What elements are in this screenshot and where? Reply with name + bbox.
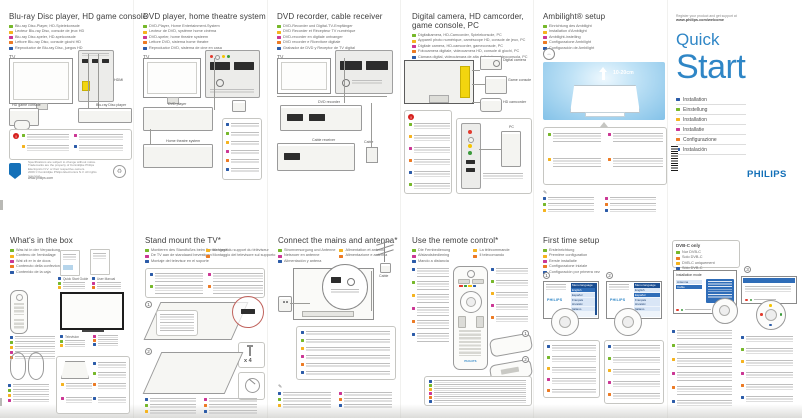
language-flag-icon [278,392,281,395]
translation-item: Montaggio del televisore sul supporto [206,253,261,258]
option-cable: Cable [676,285,702,289]
language-flag-icon [676,257,680,260]
language-flag-icon [676,98,680,101]
footnote-placeholder [548,197,594,200]
option-list: Antenna Cable [676,280,702,289]
language-flag-icon [226,150,229,153]
language-flag-icon [301,339,304,342]
language-flag-icon [409,159,412,162]
panel-setup: First time setup ErsteinrichtungPremière… [543,236,664,275]
television-caption: Television [60,335,124,347]
instruction-placeholder [746,384,793,392]
translation-item: Configuración por primera vez [543,270,664,275]
language-flag-icon [676,118,680,121]
language-flag-icon [412,50,416,53]
note-text-placeholder [434,400,526,403]
language-flag-icon [543,36,547,39]
menu-item: English [571,288,597,292]
callout-placeholder [496,280,528,288]
quick-start-guide-booklet [60,250,80,276]
language-flag-icon [226,159,229,162]
translation-item: Montaje del televisor en el soporte [145,259,200,264]
screen-philips-label: PHILIPS [547,298,562,302]
language-flag-icon [60,335,63,338]
stand-footnotes [145,398,263,414]
caption-placeholder [98,335,118,338]
setup2-instructions-right [741,336,797,402]
step-circle-2: 2 [522,356,529,363]
language-flag-icon [278,249,282,252]
instruction-placeholder [677,386,732,396]
translation-item: Installatie [676,125,746,135]
ok-button [466,297,476,307]
note-text-placeholder [231,159,259,164]
language-flag-icon [206,255,210,258]
caution-icon: ! [13,133,19,139]
language-flag-icon [150,285,153,288]
instruction-placeholder [746,360,793,368]
panel-camera: Digital camera, HD camcorder, game conso… [412,12,530,60]
fold-line [267,0,268,418]
language-flag-icon [672,372,675,375]
language-flag-icon [74,145,77,148]
language-flag-icon [301,363,304,366]
language-flag-icon [543,197,546,200]
magnifier-detail-circle [232,296,264,328]
side-connector-strip [461,123,481,189]
panel-title: What's in the box [10,236,128,245]
language-flag-icon [429,396,432,399]
remote-brand-label: PHILIPS [454,359,487,363]
language-flag-icon [676,251,680,254]
note-text-placeholder [231,141,259,146]
remote-ok-detail [559,316,571,328]
translation-list: Einrichtung des AmbilightInstallation d'… [543,24,665,51]
tv-stand [585,112,625,117]
language-flag-icon [145,249,149,252]
instruction-placeholder [613,369,660,377]
language-flag-icon [473,255,477,258]
screw-head-icon [247,345,253,347]
language-flag-icon [608,158,611,161]
language-flag-icon [60,344,63,347]
language-flag-icon [741,396,744,399]
menu-title: Menu language [571,283,597,288]
panel-stand: Stand mount the TV* Montieren des Standf… [145,236,263,264]
home-theatre-device [143,144,213,168]
language-flag-icon [548,133,551,136]
philips-site: www.philips.com [28,176,53,180]
game-console-label: HD game console [12,103,41,107]
language-flag-icon [543,41,547,44]
stand-info-box [56,356,130,414]
language-flag-icon [301,331,304,334]
language-flag-icon [93,372,96,375]
qsg-caption: Quick Start Guide [58,277,88,289]
instruction-placeholder [746,336,793,344]
pc-label: PC [509,125,514,129]
note-text-placeholder [553,158,601,169]
fold-line [133,0,134,418]
language-flag-icon [10,260,14,263]
bluray-player-device [78,108,132,123]
language-flag-icon [412,56,416,59]
step-circle-1: 1 [543,272,550,279]
language-flag-icon [412,268,415,271]
dvd-player-label: DVD player [168,102,186,106]
language-flag-icon [339,249,343,252]
camera-lens-icon [493,60,500,67]
pc-tower-device [501,131,521,167]
up-arrow-icon [602,72,605,80]
instruction-placeholder [677,358,732,368]
remote-callouts-left [412,268,450,342]
language-flag-icon [8,394,11,397]
philips-wordmark: PHILIPS [747,169,787,180]
remote-ok-detail [719,305,730,316]
antenna-cable [277,96,387,97]
language-flag-icon [676,108,680,111]
note-text-placeholder [434,380,526,383]
caption-placeholder [13,389,49,392]
language-flag-icon [543,209,546,212]
footnote-placeholder [283,398,331,402]
translation-list: Digitalkamera, HD-Camcorder, Spielekonso… [412,33,530,60]
instruction-placeholder [677,344,732,354]
note-text-placeholder [613,133,663,144]
hdmi-label: HDMI [114,78,123,82]
language-flag-icon [208,285,211,288]
language-flag-icon [143,31,147,34]
language-flag-icon [93,335,96,338]
scart-port-icon [210,62,230,70]
language-flag-icon [547,345,550,348]
color-keys [459,285,476,287]
scart-cable [214,58,215,110]
translation-item: Alimentazione e antenna [339,253,394,258]
language-flag-icon [491,316,494,319]
instruction-placeholder [746,348,793,356]
translation-item: Einstellung [676,105,746,115]
caption-placeholder [63,282,85,285]
language-flag-icon [226,141,229,144]
caption-placeholder [15,341,55,344]
vga-cable [479,149,501,150]
language-flag-icon [672,330,675,333]
instruction-placeholder [677,372,732,382]
manual-label: User Manual [97,277,115,281]
language-flag-icon [60,340,63,343]
barcode [671,146,678,171]
remote-control-illustration [10,290,28,334]
caution-text-placeholder [79,145,123,153]
footnote-placeholder [610,197,656,200]
side-connector-detail: PC [456,118,532,194]
caution-box: ! [9,129,132,160]
language-flag-icon [547,389,550,392]
panel-title: DVD player, home theatre system [143,12,263,21]
note-text-placeholder [231,123,259,128]
caption-placeholder [160,314,194,332]
translation-item: Il telecomando [473,253,528,258]
footnote-placeholder [610,209,656,212]
menu-item: Français [571,298,597,302]
caption-placeholder [98,383,126,391]
step-circle-1: 1 [522,330,529,337]
language-flag-icon [58,286,61,289]
language-flag-icon [339,255,343,258]
translation-label: Contenido de la caja [16,270,51,275]
inset-caption-box [156,310,198,336]
screw-count-label: x 4 [244,358,252,364]
tv-screen [13,62,69,100]
note-text-placeholder [213,285,263,294]
language-flag-icon [412,255,416,258]
language-flag-icon [339,392,342,395]
cover-language-list: InstallationEinstellungInstallationInsta… [676,95,746,155]
caution-box: ! [404,110,452,194]
menu-item: Italiano [634,307,660,311]
detail-caption-placeholder [483,173,523,181]
screen-legend [676,309,711,312]
translation-item: Alimentación y antena [278,259,333,264]
language-flag-icon [9,36,13,39]
stand-illustration [61,361,89,379]
instruction-placeholder [746,396,793,402]
language-flag-icon [93,397,96,400]
qsg-label: Quick Start Guide [63,277,88,281]
language-flag-icon [301,347,304,350]
option-antenna: Antenna [676,280,702,284]
instruction-placeholder [677,400,732,408]
caption-placeholder [13,384,49,387]
caption-placeholder [98,362,126,368]
power-adapter [232,100,246,112]
footnote-placeholder [344,404,392,408]
translation-item: Configuración de Ambilight [543,46,665,51]
language-flag-icon [74,134,77,137]
language-flag-icon [277,47,281,50]
translation-label: Installation [683,97,707,103]
language-flag-icon [543,25,547,28]
recycle-logo-icon: ♻ [113,165,126,178]
stand-note-box [145,268,265,298]
port-caption-placeholder [210,89,254,93]
note-text-placeholder [434,392,526,395]
callout-placeholder [417,281,449,290]
language-flag-icon [278,255,282,258]
language-flag-icon [92,282,95,285]
antenna-wall-socket [380,263,391,273]
language-flag-icon [10,341,13,344]
callout-placeholder [496,268,528,276]
language-flag-icon [543,260,547,263]
language-flag-icon [409,183,412,186]
screen-text-placeholder [546,284,566,290]
language-flag-icon [145,410,148,413]
caption-placeholder [97,282,121,285]
language-flag-icon [277,36,281,39]
callout-placeholder [417,320,449,329]
translation-label: Installatie [683,127,704,133]
language-flag-icon [277,41,281,44]
tv-front-illustration [143,58,201,98]
cables-caption [8,384,52,402]
language-flag-icon [608,357,611,360]
language-flag-icon [8,389,11,392]
setup-instructions-1 [543,340,600,398]
fold-line [400,0,401,418]
translation-label: Instalación [683,147,707,153]
callout-placeholder [417,268,449,277]
instruction-placeholder [746,372,793,380]
translation-item: Installation [676,115,746,125]
language-flag-icon [22,145,25,148]
screw-icon [249,346,251,356]
booklet-cover-text [63,254,76,260]
booklet-cover-text [93,253,106,259]
number-pad [459,330,481,356]
caution-text-placeholder [27,134,69,142]
power-cord-coil [10,352,26,380]
footnote-placeholder [150,404,196,408]
note-text-placeholder [434,384,526,387]
antenna-cable [371,271,372,311]
panel-title: Use the remote control* [412,236,530,245]
language-flag-icon [547,378,550,381]
language-flag-icon [429,392,432,395]
translation-label: Einstellung [683,107,707,113]
language-flag-icon [412,333,415,336]
language-flag-icon [547,356,550,359]
ambilight-tv-silhouette [570,85,640,113]
step-circle-3: 3 [744,266,751,273]
note-marker-icon: ✎ [543,190,547,196]
menu-scrollbar [595,288,597,315]
note-text-placeholder [553,133,601,144]
language-flag-icon [278,404,281,407]
language-flag-icon [226,168,229,171]
cable [472,102,480,103]
caption-placeholder [65,344,85,347]
language-flag-icon [278,260,282,263]
language-flag-icon [672,386,675,389]
language-flag-icon [10,265,14,268]
source-button [472,279,484,284]
language-flag-icon [543,31,547,34]
port-caption-placeholder [82,53,109,56]
language-flag-icon [143,41,147,44]
mains-footnotes [278,392,396,408]
bluray-player-label: Blu-ray Disc player [96,103,126,107]
translation-label: Configurazione [683,137,717,143]
caution-text-placeholder [414,159,450,167]
translation-list: Montieren des Standfußes beim Fernsehger… [145,248,263,264]
tv-stand-bar [302,311,354,317]
fold-line [667,0,668,418]
panel-title: Ambilight® setup [543,12,665,21]
caption-placeholder [13,394,49,397]
antenna-port-icon [347,278,355,286]
cable-receiver-device [277,143,355,171]
language-flag-icon [672,400,675,403]
language-flag-icon [9,31,13,34]
language-flag-icon [226,123,229,126]
caution-text-placeholder [414,147,450,155]
language-flag-icon [741,372,744,375]
translation-label: Installation [683,117,707,123]
magnifier-detail-circle [322,264,368,310]
language-flag-icon [412,307,415,310]
setup2-instructions-left [672,330,736,408]
translation-item: Configurazione [676,135,746,145]
language-flag-icon [409,123,412,126]
translation-label: Mando a distancia [418,259,449,264]
note-text-placeholder [155,273,203,282]
language-flag-icon [150,273,153,276]
language-flag-icon [547,367,550,370]
hdmi-port-icon [102,59,109,63]
screen-header-bar [743,278,795,283]
language-flag-icon [676,128,680,131]
source-button [458,279,470,284]
language-flag-icon [429,388,432,391]
caption-placeholder [13,399,49,402]
hd-camcorder-device [480,98,502,112]
panel-bluray: Blu-ray Disc player, HD game console Blu… [9,12,133,61]
menu-item: English [634,288,660,292]
caution-text-placeholder [27,145,69,153]
language-flag-icon [278,398,281,401]
note-text-placeholder [231,132,259,137]
note-marker-icon: ✎ [278,384,282,390]
button-pad [14,303,24,315]
wall-outlet [278,296,292,312]
panel-title: DVD recorder, cable receiver [277,12,395,21]
language-flag-icon [412,260,416,263]
language-flag-icon [409,147,412,150]
caption-placeholder [15,346,55,349]
panel-title-line2: game console, PC [412,21,530,30]
language-flag-icon [301,355,304,358]
language-flag-icon [608,133,611,136]
language-flag-icon [741,336,744,339]
tv-screen [281,62,327,90]
footnote-placeholder [283,392,331,396]
language-flag-icon [145,404,148,407]
language-flag-icon [605,203,608,206]
audio-port-icon [216,79,224,87]
callout-placeholder [417,294,449,303]
instruction-placeholder [552,356,596,363]
language-flag-icon [93,383,96,386]
ambilight-note-box [543,127,667,185]
tv-front-illustration [277,58,331,94]
instruction-placeholder [613,345,660,353]
remote-callouts-right [491,268,530,324]
dvd-recorder-device [280,105,362,131]
hd-camcorder-label: HD camcorder [503,100,526,104]
language-flag-icon [145,255,149,258]
stand-neck-detail [241,309,255,314]
language-flag-icon [204,410,207,413]
language-flag-icon [277,25,281,28]
instruction-placeholder [552,378,596,385]
game-console-device [485,76,507,94]
remote-ok-detail [765,309,777,321]
footnote-placeholder [150,398,196,402]
translation-item: Instalación [676,145,746,155]
